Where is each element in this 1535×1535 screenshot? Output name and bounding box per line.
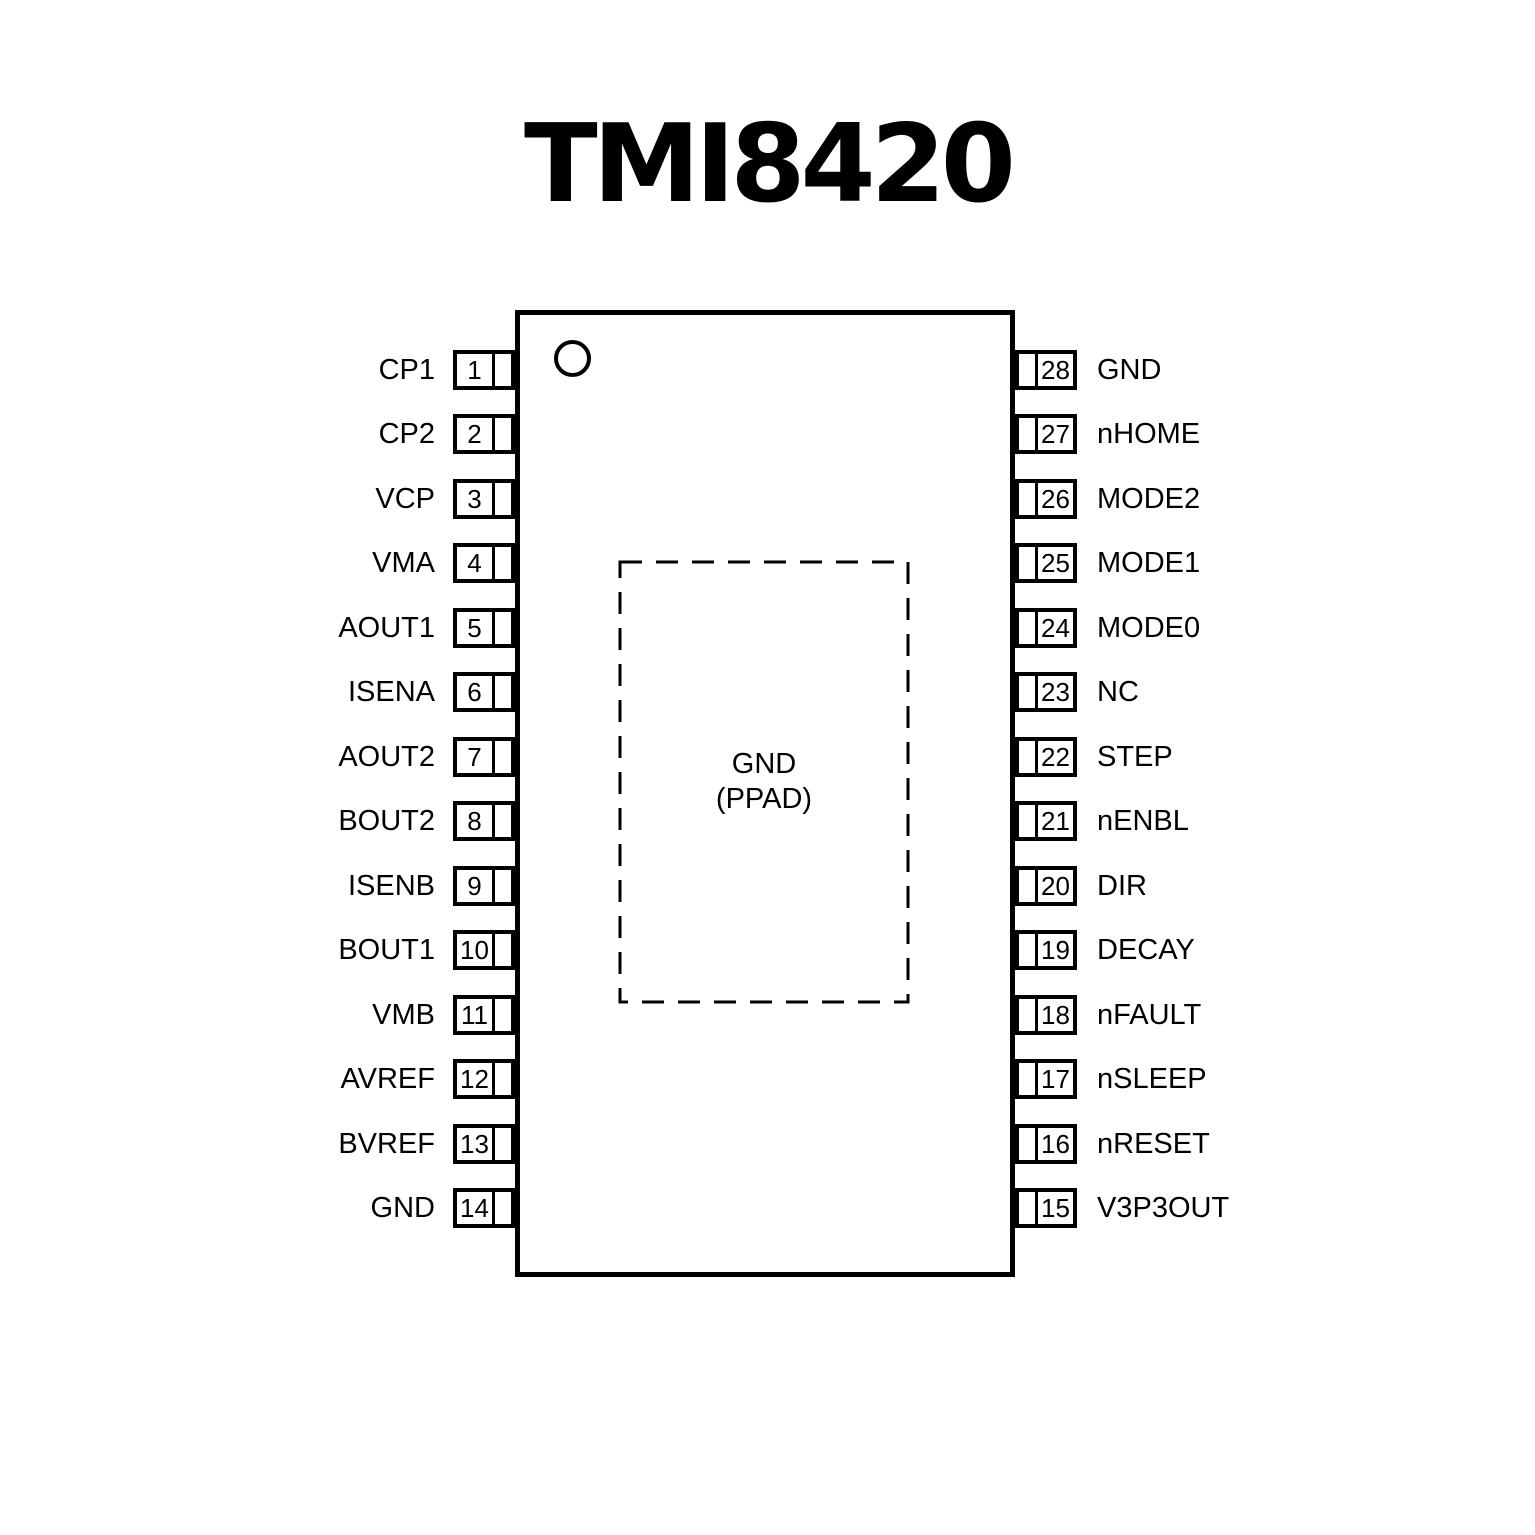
pin-row-right-26: MODE226 — [0, 479, 1535, 519]
pin-number: 22 — [1035, 741, 1073, 773]
pin-row-right-22: STEP22 — [0, 737, 1535, 777]
pin-box: 23 — [1015, 672, 1077, 712]
pin-number: 21 — [1035, 805, 1073, 837]
pin-number: 23 — [1035, 676, 1073, 708]
pin-row-right-23: NC23 — [0, 672, 1535, 712]
pin-row-right-24: MODE024 — [0, 608, 1535, 648]
pin-number: 25 — [1035, 547, 1073, 579]
pin-row-right-17: nSLEEP17 — [0, 1059, 1535, 1099]
pin-label: DECAY — [1097, 930, 1477, 970]
pin-label: nFAULT — [1097, 995, 1477, 1035]
pin-stub — [1019, 870, 1035, 902]
pin-box: 18 — [1015, 995, 1077, 1035]
pin-box: 20 — [1015, 866, 1077, 906]
pin-stub — [1019, 741, 1035, 773]
pin-stub — [1019, 805, 1035, 837]
pin-box: 25 — [1015, 543, 1077, 583]
pin-stub — [1019, 676, 1035, 708]
pin-number: 17 — [1035, 1063, 1073, 1095]
pin-box: 28 — [1015, 350, 1077, 390]
pin-stub — [1019, 612, 1035, 644]
pin-box: 17 — [1015, 1059, 1077, 1099]
pin-box: 16 — [1015, 1124, 1077, 1164]
pin-number: 19 — [1035, 934, 1073, 966]
pin-number: 24 — [1035, 612, 1073, 644]
pin-label: V3P3OUT — [1097, 1188, 1477, 1228]
pin-number: 16 — [1035, 1128, 1073, 1160]
chip-title: TMI8420 — [0, 102, 1535, 227]
pin-box: 24 — [1015, 608, 1077, 648]
pin-number: 27 — [1035, 418, 1073, 450]
pin-stub — [1019, 1192, 1035, 1224]
pin-stub — [1019, 418, 1035, 450]
pin-stub — [1019, 483, 1035, 515]
pin-label: MODE0 — [1097, 608, 1477, 648]
pin-stub — [1019, 1128, 1035, 1160]
pin-label: nRESET — [1097, 1124, 1477, 1164]
pin-number: 20 — [1035, 870, 1073, 902]
pin-row-right-21: nENBL21 — [0, 801, 1535, 841]
pin-number: 15 — [1035, 1192, 1073, 1224]
pin-label: MODE2 — [1097, 479, 1477, 519]
pin-row-right-15: V3P3OUT15 — [0, 1188, 1535, 1228]
pin-box: 26 — [1015, 479, 1077, 519]
pin-stub — [1019, 999, 1035, 1031]
pin-row-right-27: nHOME27 — [0, 414, 1535, 454]
pin-stub — [1019, 1063, 1035, 1095]
pin-label: nENBL — [1097, 801, 1477, 841]
pin-label: nHOME — [1097, 414, 1477, 454]
pin-box: 27 — [1015, 414, 1077, 454]
pin-label: GND — [1097, 350, 1477, 390]
pinout-diagram: TMI8420 GND (PPAD) CP11CP22VCP3VMA4AOUT1… — [0, 0, 1535, 1535]
pin-label: MODE1 — [1097, 543, 1477, 583]
pin-stub — [1019, 354, 1035, 386]
pin-label: NC — [1097, 672, 1477, 712]
pin-box: 22 — [1015, 737, 1077, 777]
pin-box: 19 — [1015, 930, 1077, 970]
pin-row-right-18: nFAULT18 — [0, 995, 1535, 1035]
pin-number: 26 — [1035, 483, 1073, 515]
pin-row-right-20: DIR20 — [0, 866, 1535, 906]
pin-label: STEP — [1097, 737, 1477, 777]
pin-stub — [1019, 547, 1035, 579]
pin-label: nSLEEP — [1097, 1059, 1477, 1099]
pin-box: 15 — [1015, 1188, 1077, 1228]
pin-box: 21 — [1015, 801, 1077, 841]
pin-stub — [1019, 934, 1035, 966]
pin-number: 18 — [1035, 999, 1073, 1031]
pin-row-right-28: GND28 — [0, 350, 1535, 390]
pin-row-right-25: MODE125 — [0, 543, 1535, 583]
pin-row-right-19: DECAY19 — [0, 930, 1535, 970]
pin-label: DIR — [1097, 866, 1477, 906]
pin-number: 28 — [1035, 354, 1073, 386]
pin-row-right-16: nRESET16 — [0, 1124, 1535, 1164]
